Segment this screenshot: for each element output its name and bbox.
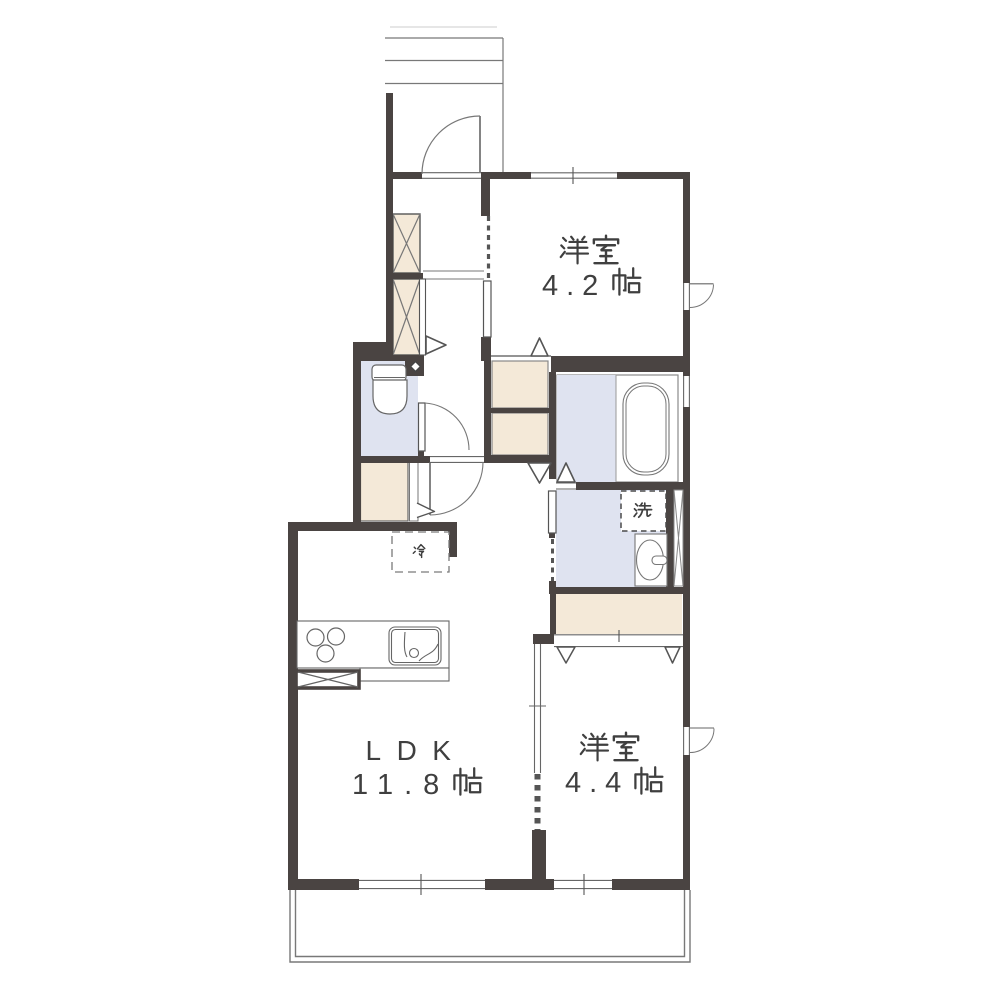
svg-text:4.2: 4.2 — [542, 270, 606, 302]
svg-text:LDK: LDK — [366, 735, 467, 766]
svg-text:4.4: 4.4 — [565, 767, 629, 799]
svg-text:11.8: 11.8 — [352, 769, 450, 801]
